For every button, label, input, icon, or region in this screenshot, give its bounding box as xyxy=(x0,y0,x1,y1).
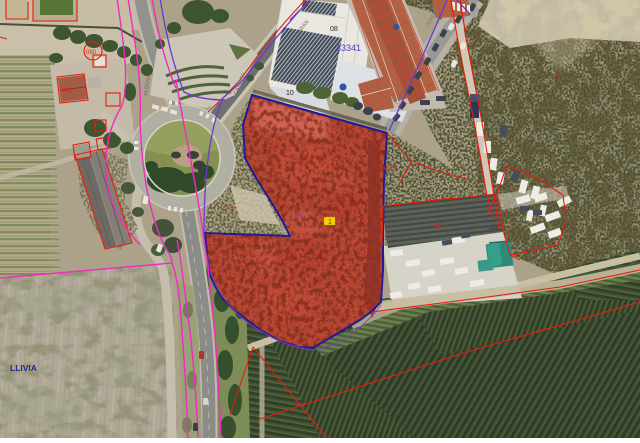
svg-text:+: + xyxy=(556,77,560,83)
svg-text:08: 08 xyxy=(330,26,338,33)
svg-text:18850: 18850 xyxy=(383,166,397,172)
svg-text:I: I xyxy=(307,4,309,11)
svg-text:LLIVIA: LLIVIA xyxy=(10,363,37,373)
svg-text:33341: 33341 xyxy=(291,214,308,220)
svg-text:080: 080 xyxy=(86,50,97,56)
svg-text:1: 1 xyxy=(328,219,332,226)
svg-text:18-59: 18-59 xyxy=(220,206,233,212)
svg-text:443: 443 xyxy=(434,224,445,230)
svg-text:10: 10 xyxy=(286,90,294,97)
svg-text:001: 001 xyxy=(62,88,73,94)
svg-text:33341: 33341 xyxy=(336,43,361,53)
svg-text:I: I xyxy=(268,83,270,90)
